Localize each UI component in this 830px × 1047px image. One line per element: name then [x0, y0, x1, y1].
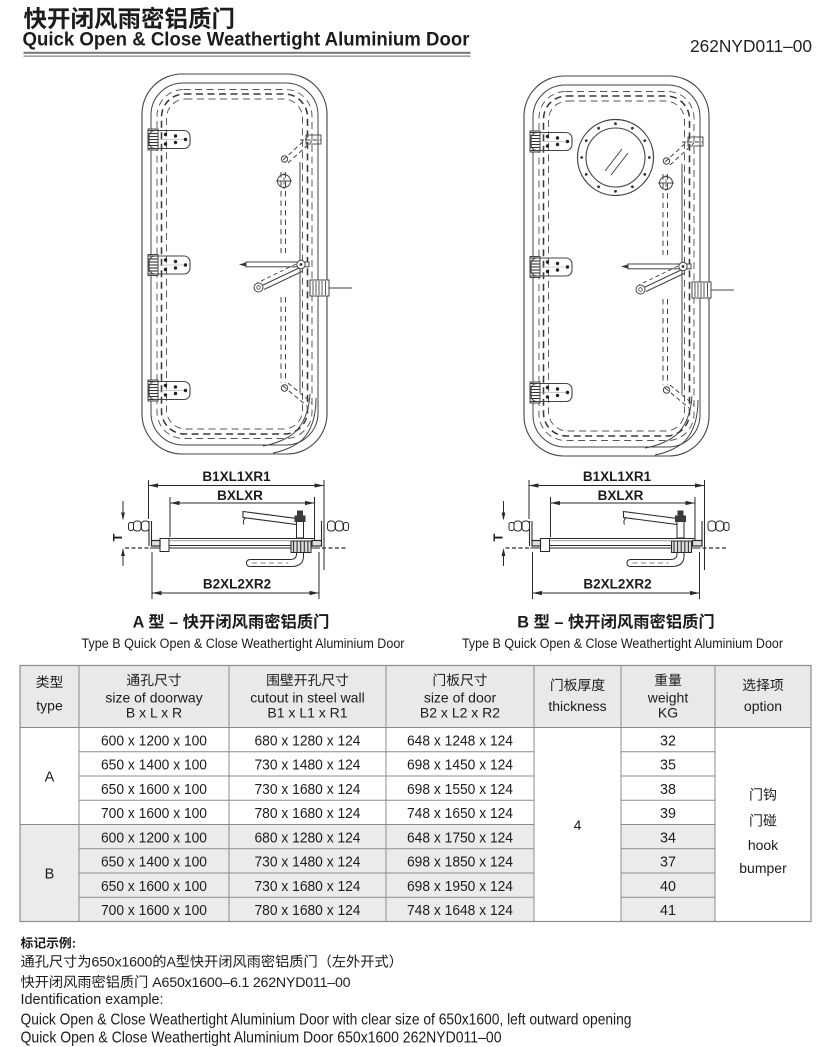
svg-text:41: 41 [660, 903, 676, 919]
svg-text:650 x 1600 x 100: 650 x 1600 x 100 [101, 879, 207, 895]
svg-text:700 x 1600 x 100: 700 x 1600 x 100 [101, 903, 207, 919]
svg-text:40: 40 [660, 879, 676, 895]
svg-text:650 x 1600 x 100: 650 x 1600 x 100 [101, 782, 207, 798]
svg-text:weight: weight [647, 690, 689, 706]
svg-text:bumper: bumper [739, 860, 787, 876]
svg-text:32: 32 [660, 733, 676, 749]
svg-text:650 x 1400 x 100: 650 x 1400 x 100 [101, 758, 207, 774]
svg-text:B2 x L2 x R2: B2 x L2 x R2 [420, 705, 500, 721]
svg-text:B x L x R: B x L x R [126, 705, 182, 721]
svg-text:B: B [517, 614, 529, 632]
svg-text:730 x 1680 x 124: 730 x 1680 x 124 [255, 782, 361, 798]
svg-text:648 x 1248 x 124: 648 x 1248 x 124 [407, 733, 513, 749]
svg-text:B2XL2XR2: B2XL2XR2 [583, 577, 651, 592]
svg-text:size of doorway: size of doorway [105, 690, 202, 706]
svg-text:BXLXR: BXLXR [598, 488, 644, 503]
svg-text:A: A [45, 769, 55, 785]
svg-text::: : [72, 936, 76, 951]
svg-text:38: 38 [660, 782, 676, 798]
svg-text:A: A [167, 955, 177, 971]
svg-text:type: type [36, 698, 63, 714]
svg-text:780 x 1680 x 124: 780 x 1680 x 124 [255, 903, 361, 919]
svg-text:4: 4 [574, 817, 582, 833]
svg-text:700 x 1600 x 100: 700 x 1600 x 100 [101, 806, 207, 822]
svg-text:thickness: thickness [548, 698, 606, 714]
svg-text:37: 37 [660, 855, 676, 871]
svg-text:Type B Quick Open & Close Weat: Type B Quick Open & Close Weathertight A… [462, 636, 783, 652]
svg-text:780 x 1680 x 124: 780 x 1680 x 124 [255, 806, 361, 822]
svg-text:748 x 1650 x 124: 748 x 1650 x 124 [407, 806, 513, 822]
svg-text:B2XL2XR2: B2XL2XR2 [203, 577, 271, 592]
svg-text:748 x 1648 x 124: 748 x 1648 x 124 [407, 903, 513, 919]
svg-text:A650x1600–6.1 262NYD011–00: A650x1600–6.1 262NYD011–00 [152, 975, 350, 991]
svg-text:cutout in steel wall: cutout in steel wall [250, 690, 364, 706]
svg-text:Quick Open & Close Weathertigh: Quick Open & Close Weathertight Aluminiu… [23, 29, 470, 51]
svg-text:698 x 1950 x 124: 698 x 1950 x 124 [407, 879, 513, 895]
svg-text:KG: KG [658, 705, 678, 721]
svg-text:730 x 1480 x 124: 730 x 1480 x 124 [255, 758, 361, 774]
svg-text:option: option [744, 698, 782, 714]
svg-text:600 x 1200 x 100: 600 x 1200 x 100 [101, 830, 207, 846]
svg-text:698 x 1850 x 124: 698 x 1850 x 124 [407, 855, 513, 871]
svg-text:Type B Quick Open & Close Weat: Type B Quick Open & Close Weathertight A… [82, 636, 405, 652]
svg-text:–: – [554, 614, 563, 632]
svg-text:B1XL1XR1: B1XL1XR1 [202, 469, 271, 484]
svg-text:262NYD011–00: 262NYD011–00 [690, 36, 812, 56]
svg-text:hook: hook [748, 837, 779, 853]
svg-text:650x1600: 650x1600 [92, 955, 153, 971]
svg-text:Quick Open & Close Weathertigh: Quick Open & Close Weathertight Aluminiu… [21, 1030, 502, 1047]
svg-text:730 x 1480 x 124: 730 x 1480 x 124 [255, 855, 361, 871]
svg-text:–: – [169, 614, 178, 632]
svg-text:BXLXR: BXLXR [217, 488, 263, 503]
svg-text:B1XL1XR1: B1XL1XR1 [583, 469, 652, 484]
svg-text:698 x 1550 x 124: 698 x 1550 x 124 [407, 782, 513, 798]
svg-text:34: 34 [660, 830, 676, 846]
svg-text:35: 35 [660, 758, 676, 774]
svg-text:680 x 1280 x 124: 680 x 1280 x 124 [255, 733, 361, 749]
svg-text:600 x 1200 x 100: 600 x 1200 x 100 [101, 733, 207, 749]
svg-text:A: A [133, 614, 145, 632]
svg-text:B: B [45, 866, 55, 882]
svg-text:680 x 1280 x 124: 680 x 1280 x 124 [255, 830, 361, 846]
svg-text:Identification example:: Identification example: [21, 991, 164, 1008]
svg-text:B1 x L1 x R1: B1 x L1 x R1 [267, 705, 347, 721]
svg-text:T: T [110, 534, 125, 542]
svg-text:698 x 1450 x 124: 698 x 1450 x 124 [407, 758, 513, 774]
svg-text:648 x 1750 x 124: 648 x 1750 x 124 [407, 830, 513, 846]
svg-text:650 x 1400 x 100: 650 x 1400 x 100 [101, 855, 207, 871]
svg-text:Quick Open & Close Weathertigh: Quick Open & Close Weathertight Aluminiu… [21, 1012, 632, 1029]
svg-text:39: 39 [660, 806, 676, 822]
svg-text:size of door: size of door [424, 690, 497, 706]
svg-text:730 x 1680 x 124: 730 x 1680 x 124 [255, 879, 361, 895]
